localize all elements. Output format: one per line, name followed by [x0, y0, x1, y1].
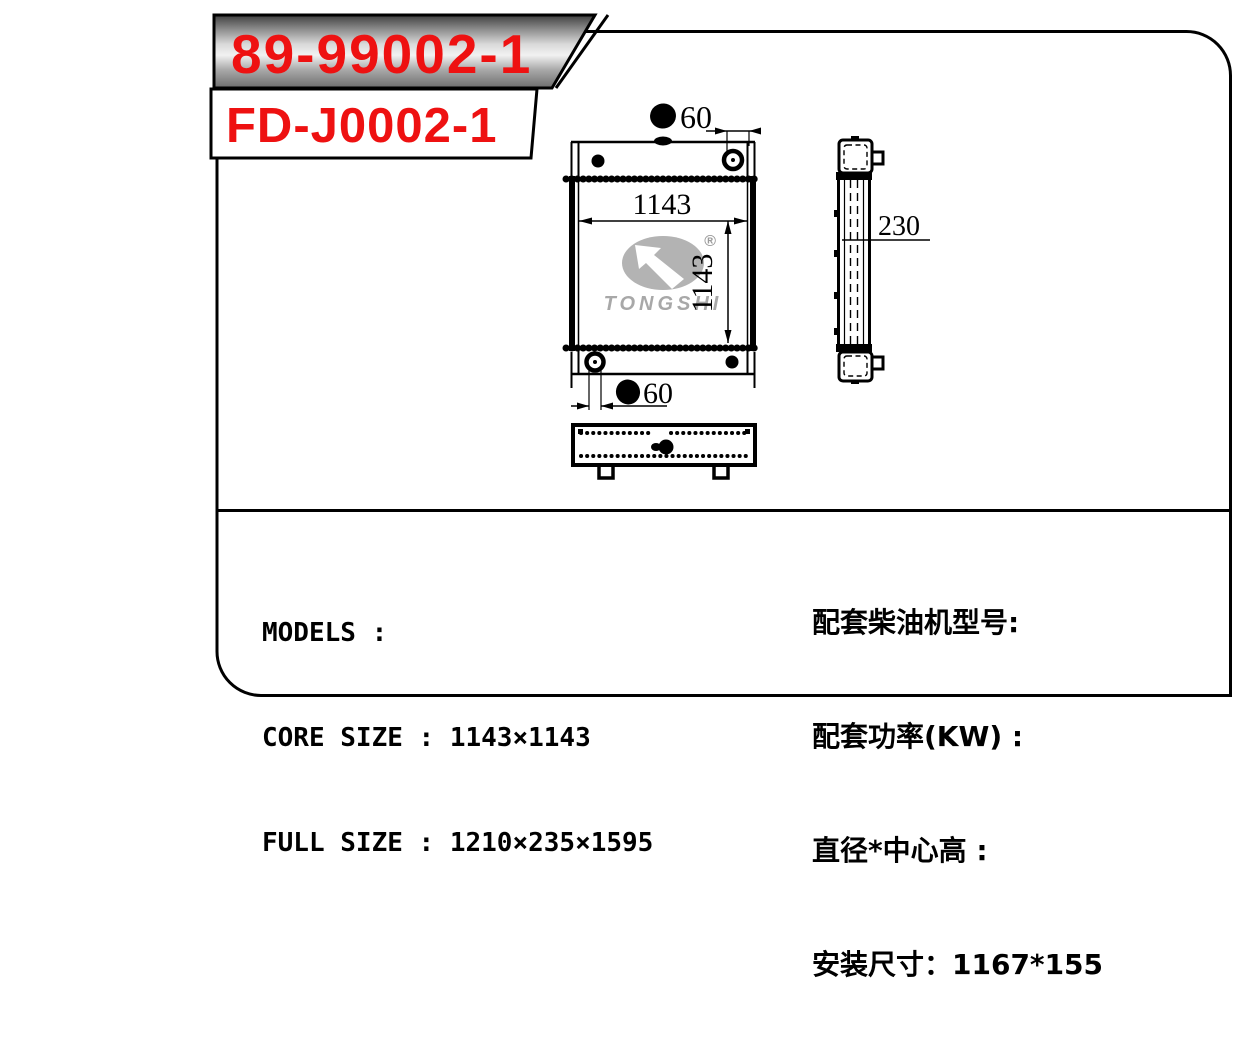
top-port-dim: 60 [680, 99, 712, 135]
spec-power-kw: 配套功率(KW) : [812, 718, 1212, 756]
spec-full-size: FULL SIZE : 1210×235×1595 [262, 826, 702, 861]
spec-mounting-size: 安装尺寸：1167*155 [812, 946, 1212, 984]
dim-core-height [725, 221, 732, 343]
mount-hole-dot [726, 356, 739, 369]
phi-symbol-icon [613, 376, 644, 407]
side-bracket [872, 152, 883, 164]
side-top-tank [839, 136, 883, 173]
side-core [834, 172, 872, 352]
core-height-dim: 1143 [686, 254, 719, 313]
spec-block-cn: 配套柴油机型号: 配套功率(KW) : 直径*中心高 : 安装尺寸：1167*1… [812, 528, 1212, 1060]
mount-hole-dot [592, 155, 605, 168]
spec-core-size: CORE SIZE : 1143×1143 [262, 721, 702, 756]
top-view [573, 425, 755, 478]
part-number-labels: 89-99002-1 FD-J0002-1 [211, 15, 608, 158]
bottom-port-dim: 60 [643, 377, 673, 410]
spec-block-en: MODELS : CORE SIZE : 1143×1143 FULL SIZE… [262, 546, 702, 931]
spec-engine-model: 配套柴油机型号: [812, 604, 1212, 642]
phi-symbol-icon [647, 100, 679, 132]
side-bottom-tank [839, 352, 883, 384]
side-view [834, 136, 930, 384]
filler-cap-icon [654, 137, 672, 146]
depth-dim: 230 [878, 211, 920, 242]
core-width-dim: 1143 [633, 188, 692, 221]
spec-models: MODELS : [262, 616, 702, 651]
spec-dia-center-height: 直径*中心高 : [812, 832, 1212, 870]
catalog-page: ® TONGSHI [0, 0, 1240, 716]
part-number-tag-text: FD-J0002-1 [226, 99, 497, 153]
side-bracket [872, 357, 883, 369]
part-number-plate-text: 89-99002-1 [231, 23, 532, 85]
registered-mark: ® [704, 233, 716, 250]
